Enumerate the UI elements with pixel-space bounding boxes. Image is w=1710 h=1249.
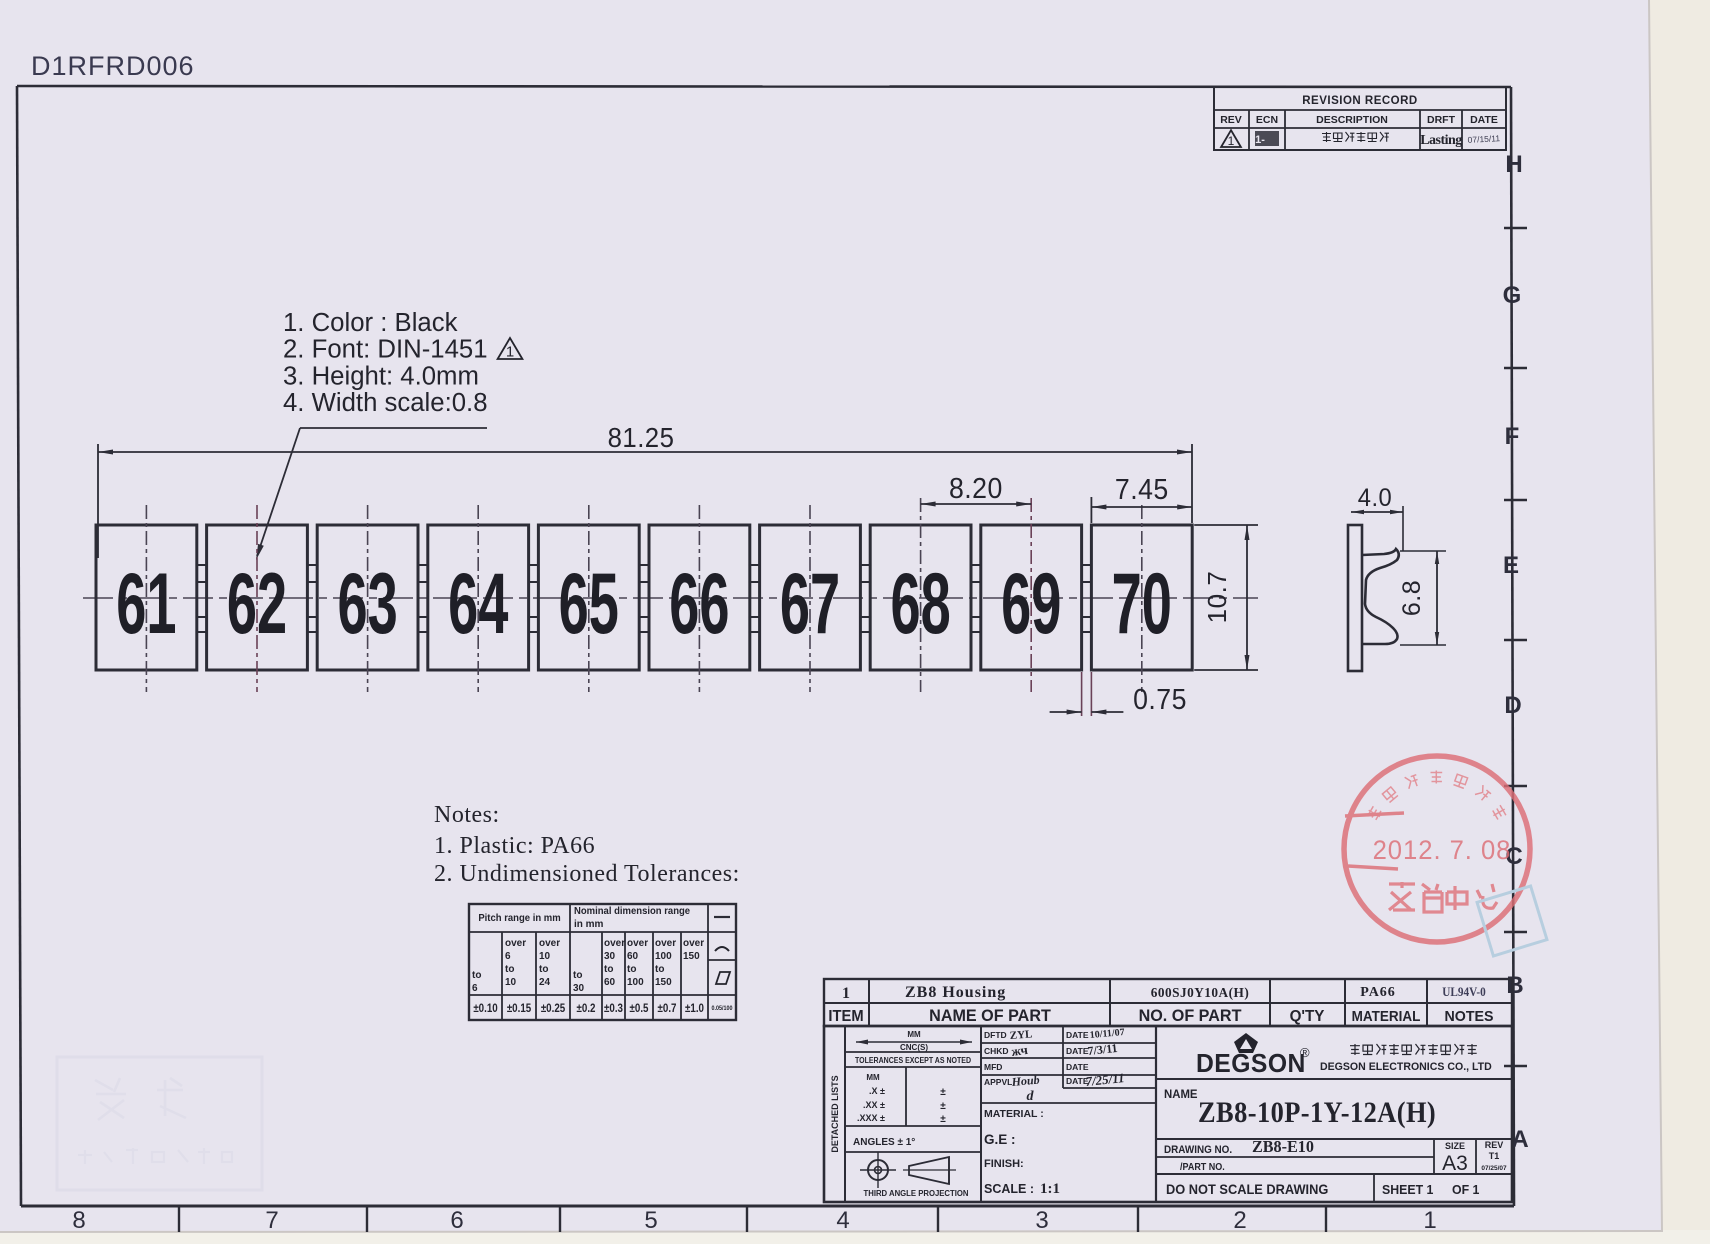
svg-text:65: 65 [559,556,619,652]
svg-text:±: ± [940,1101,946,1112]
svg-text:±0.5: ±0.5 [630,1002,649,1015]
svg-text:8: 8 [72,1207,85,1234]
svg-text:0.05/100: 0.05/100 [712,1006,733,1012]
svg-text:A: A [1511,1126,1528,1153]
svg-text:A3: A3 [1442,1152,1468,1175]
svg-text:±0.25: ±0.25 [541,1002,565,1015]
svg-text:10.7: 10.7 [1202,571,1232,624]
svg-text:30: 30 [573,983,585,994]
svg-text:G.E :: G.E : [984,1132,1016,1147]
svg-text:NAME: NAME [1164,1088,1198,1101]
svg-text:07/25/07: 07/25/07 [1481,1165,1507,1172]
svg-text:to: to [539,964,548,975]
svg-text:FINISH:: FINISH: [984,1158,1024,1170]
svg-text:over: over [627,938,648,949]
svg-text:2: 2 [1233,1207,1246,1234]
svg-text:TOLERANCES EXCEPT AS NOTED: TOLERANCES EXCEPT AS NOTED [855,1056,972,1065]
svg-text:NOTES: NOTES [1444,1009,1493,1025]
svg-text:THIRD ANGLE PROJECTION: THIRD ANGLE PROJECTION [864,1189,969,1198]
svg-text:APPVL: APPVL [984,1077,1012,1087]
svg-text:66: 66 [669,556,729,652]
svg-text:69: 69 [1001,556,1061,652]
svg-text:DO NOT SCALE DRAWING: DO NOT SCALE DRAWING [1166,1182,1328,1197]
svg-text:®: ® [1300,1045,1310,1060]
svg-text:30: 30 [604,951,616,962]
svg-text:D1RFRD006: D1RFRD006 [31,51,195,81]
svg-text:REVISION RECORD: REVISION RECORD [1302,95,1418,107]
svg-text:over: over [505,938,526,949]
svg-text:DEGSON ELECTRONICS CO., LTD: DEGSON ELECTRONICS CO., LTD [1320,1061,1492,1073]
svg-text:600SJ0Y10A(H): 600SJ0Y10A(H) [1151,985,1249,1001]
svg-text:to: to [655,964,664,975]
svg-text:.X ±: .X ± [869,1086,885,1096]
svg-text:1: 1 [1423,1207,1436,1234]
svg-text:ZB8-10P-1Y-12A(H): ZB8-10P-1Y-12A(H) [1198,1097,1436,1130]
svg-text:ZYL: ZYL [1009,1028,1032,1042]
svg-text:CHKD: CHKD [984,1046,1009,1056]
svg-text:60: 60 [604,977,616,988]
svg-text:T1: T1 [1489,1151,1500,1161]
svg-text:3: 3 [1035,1207,1048,1234]
svg-text:E: E [1503,552,1519,579]
svg-text:SIZE: SIZE [1445,1141,1465,1151]
svg-text:±: ± [940,1087,946,1098]
svg-text:Notes:: Notes: [434,802,500,828]
svg-text:±: ± [940,1114,946,1125]
svg-text:3. Height: 4.0mm: 3. Height: 4.0mm [283,362,479,390]
svg-text:REV: REV [1485,1140,1504,1150]
svg-text:10: 10 [505,977,517,988]
svg-text:NO. OF PART: NO. OF PART [1139,1006,1242,1025]
svg-text:24: 24 [539,977,551,988]
svg-text:over: over [604,938,625,949]
svg-text:1-: 1- [1255,134,1265,146]
svg-text:63: 63 [337,556,397,652]
svg-text:1: 1 [1228,134,1235,148]
svg-text:10: 10 [539,951,551,962]
svg-text:60: 60 [627,951,639,962]
svg-text:1: 1 [842,985,850,1002]
svg-text:G: G [1503,282,1522,309]
svg-text:±0.3: ±0.3 [604,1002,623,1015]
svg-text:2. Undimensioned Tolerances:: 2. Undimensioned Tolerances: [434,861,740,887]
svg-text:6: 6 [472,983,478,994]
svg-text:SHEET 1: SHEET 1 [1382,1183,1433,1197]
svg-text:MATERIAL: MATERIAL [1352,1008,1421,1025]
svg-text:61: 61 [116,556,176,652]
svg-text:H: H [1505,151,1522,178]
svg-text:to: to [573,970,582,981]
svg-text:5: 5 [644,1207,657,1234]
svg-text:1: 1 [506,344,514,361]
svg-text:UL94V-0: UL94V-0 [1442,984,1486,999]
svg-text:7.45: 7.45 [1115,473,1169,505]
svg-text:Lasting: Lasting [1420,133,1462,148]
svg-text:DETACHED LISTS: DETACHED LISTS [830,1075,840,1152]
svg-text:CNC(S): CNC(S) [900,1043,928,1052]
svg-text:DATE: DATE [1470,114,1498,126]
svg-text:6: 6 [450,1207,463,1234]
svg-text:DESCRIPTION: DESCRIPTION [1316,114,1388,126]
svg-text:4. Width scale:0.8: 4. Width scale:0.8 [283,389,488,417]
svg-text:Nominal dimension range: Nominal dimension range [574,906,691,917]
svg-text:d: d [1027,1089,1035,1104]
svg-text:8.20: 8.20 [949,472,1003,504]
svg-text:to: to [472,970,481,981]
svg-text:.XXX ±: .XXX ± [857,1113,885,1123]
svg-text:0.75: 0.75 [1133,683,1187,715]
svg-text:F: F [1505,423,1520,450]
svg-text:4: 4 [836,1207,849,1234]
svg-text:DRAWING NO.: DRAWING NO. [1164,1145,1232,1157]
svg-text:MM: MM [907,1030,921,1039]
svg-text:.XX ±: .XX ± [863,1100,885,1110]
svg-text:7: 7 [265,1207,278,1234]
svg-text:Q'TY: Q'TY [1290,1008,1325,1025]
svg-text:67: 67 [780,556,840,652]
svg-text:1:1: 1:1 [1040,1181,1060,1197]
svg-text:in mm: in mm [574,919,604,930]
svg-text:to: to [505,964,514,975]
svg-text:REV: REV [1220,114,1242,126]
svg-text:6.8: 6.8 [1398,580,1426,616]
svg-text:DFTD: DFTD [984,1030,1007,1040]
svg-text:ITEM: ITEM [828,1007,863,1025]
svg-text:ZB8 Housing: ZB8 Housing [905,984,1006,1001]
svg-text:Pitch range in mm: Pitch range in mm [478,913,561,924]
svg-text:1. Color : Black: 1. Color : Black [283,309,458,337]
svg-text:B: B [1506,972,1523,999]
svg-text:жч: жч [1010,1042,1028,1059]
svg-text:68: 68 [890,556,950,652]
svg-text:±0.2: ±0.2 [577,1002,596,1015]
svg-text:to: to [604,964,613,975]
svg-text:6: 6 [505,951,511,962]
svg-text:±0.10: ±0.10 [473,1002,497,1015]
svg-text:over: over [539,938,560,949]
svg-text:70: 70 [1112,556,1172,652]
svg-text:D: D [1504,692,1521,719]
svg-text:64: 64 [448,556,508,652]
svg-text:2. Font: DIN-1451: 2. Font: DIN-1451 [283,336,488,364]
svg-text:2012. 7. 08: 2012. 7. 08 [1373,834,1512,865]
svg-text:100: 100 [655,951,672,962]
svg-text:ANGLES ± 1°: ANGLES ± 1° [853,1137,915,1148]
svg-text:NAME OF PART: NAME OF PART [929,1006,1051,1025]
svg-text:1. Plastic: PA66: 1. Plastic: PA66 [434,833,595,859]
svg-text:150: 150 [655,977,672,988]
svg-text:81.25: 81.25 [608,422,675,453]
svg-text:DRFT: DRFT [1427,114,1456,126]
svg-text:over: over [683,938,704,949]
svg-text:DATE: DATE [1066,1030,1089,1040]
svg-text:±0.15: ±0.15 [507,1002,531,1015]
svg-text:100: 100 [627,977,644,988]
svg-text:±0.7: ±0.7 [658,1002,677,1015]
svg-text:±1.0: ±1.0 [685,1002,704,1015]
svg-text:Houb: Houb [1010,1073,1040,1089]
svg-text:ECN: ECN [1256,114,1278,126]
svg-text:62: 62 [227,556,287,652]
svg-text:07/15/11: 07/15/11 [1467,133,1500,145]
svg-text:DATE: DATE [1066,1062,1089,1072]
svg-text:MATERIAL :: MATERIAL : [984,1108,1044,1120]
svg-text:4.0: 4.0 [1358,484,1392,512]
svg-text:over: over [655,938,676,949]
svg-text:MM: MM [866,1073,880,1082]
svg-text:OF 1: OF 1 [1452,1183,1479,1197]
svg-text:ZB8-E10: ZB8-E10 [1252,1137,1314,1156]
svg-text:MFD: MFD [984,1062,1002,1072]
svg-text:/PART NO.: /PART NO. [1180,1162,1225,1174]
svg-text:SCALE :: SCALE : [984,1182,1034,1196]
svg-text:150: 150 [683,951,700,962]
svg-text:to: to [627,964,636,975]
svg-text:PA66: PA66 [1360,985,1396,1000]
svg-text:DEGSON: DEGSON [1196,1049,1306,1078]
svg-text:DATE: DATE [1066,1046,1089,1056]
